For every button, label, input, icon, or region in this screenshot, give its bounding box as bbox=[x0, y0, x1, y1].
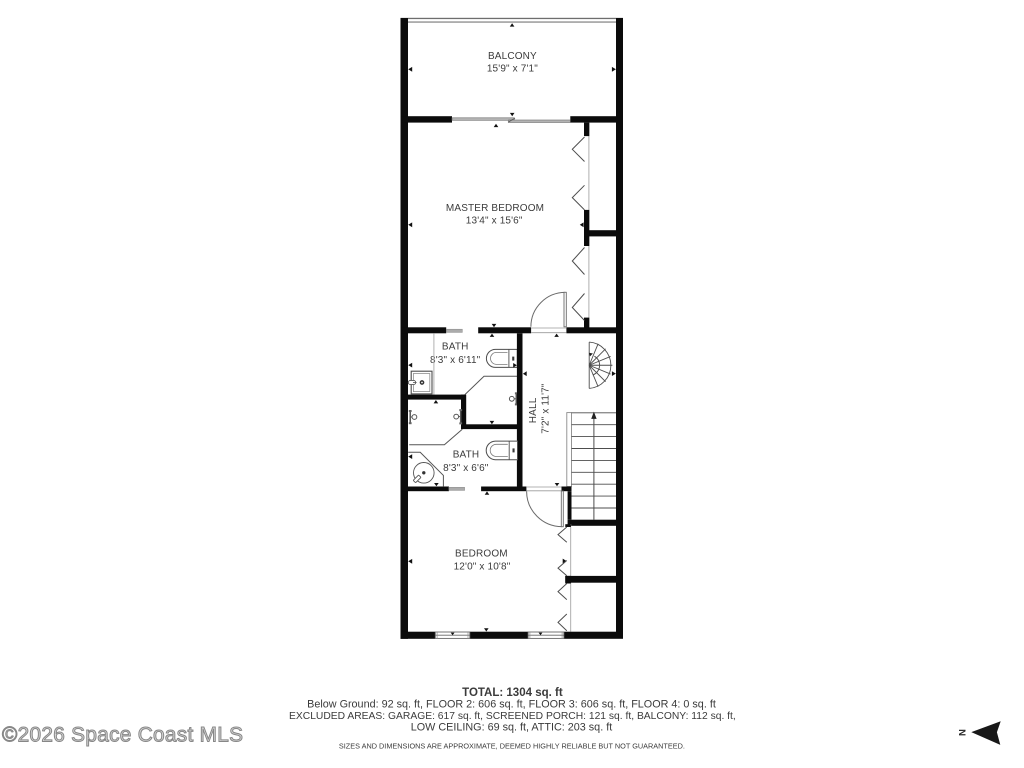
svg-text:HALL: HALL bbox=[528, 397, 539, 423]
svg-text:BEDROOM: BEDROOM bbox=[455, 549, 508, 560]
svg-text:8'3" x 6'6": 8'3" x 6'6" bbox=[443, 463, 489, 474]
svg-text:N: N bbox=[958, 729, 969, 736]
svg-text:8'3" x 6'11": 8'3" x 6'11" bbox=[430, 355, 481, 366]
svg-text:7'2" x 11'7": 7'2" x 11'7" bbox=[540, 383, 551, 434]
svg-text:©2026 Space Coast MLS: ©2026 Space Coast MLS bbox=[2, 724, 243, 747]
svg-text:BATH: BATH bbox=[453, 449, 480, 460]
svg-text:TOTAL: 1304 sq. ft: TOTAL: 1304 sq. ft bbox=[462, 687, 563, 699]
svg-text:Below Ground: 92 sq. ft, FLOOR: Below Ground: 92 sq. ft, FLOOR 2: 606 sq… bbox=[307, 698, 716, 710]
svg-text:LOW CEILING: 69 sq. ft, ATTIC:: LOW CEILING: 69 sq. ft, ATTIC: 203 sq. f… bbox=[411, 722, 612, 734]
svg-text:BALCONY: BALCONY bbox=[488, 51, 537, 62]
svg-text:15'9" x 7'1": 15'9" x 7'1" bbox=[487, 63, 538, 74]
svg-text:BATH: BATH bbox=[442, 342, 469, 353]
svg-text:EXCLUDED AREAS: GARAGE: 617 sq: EXCLUDED AREAS: GARAGE: 617 sq. ft, SCRE… bbox=[289, 711, 736, 722]
svg-text:12'0" x 10'8": 12'0" x 10'8" bbox=[454, 561, 511, 572]
svg-text:MASTER BEDROOM: MASTER BEDROOM bbox=[446, 203, 544, 214]
svg-text:SIZES AND DIMENSIONS ARE APPRO: SIZES AND DIMENSIONS ARE APPROXIMATE, DE… bbox=[339, 742, 685, 751]
svg-text:13'4" x 15'6": 13'4" x 15'6" bbox=[466, 216, 523, 227]
